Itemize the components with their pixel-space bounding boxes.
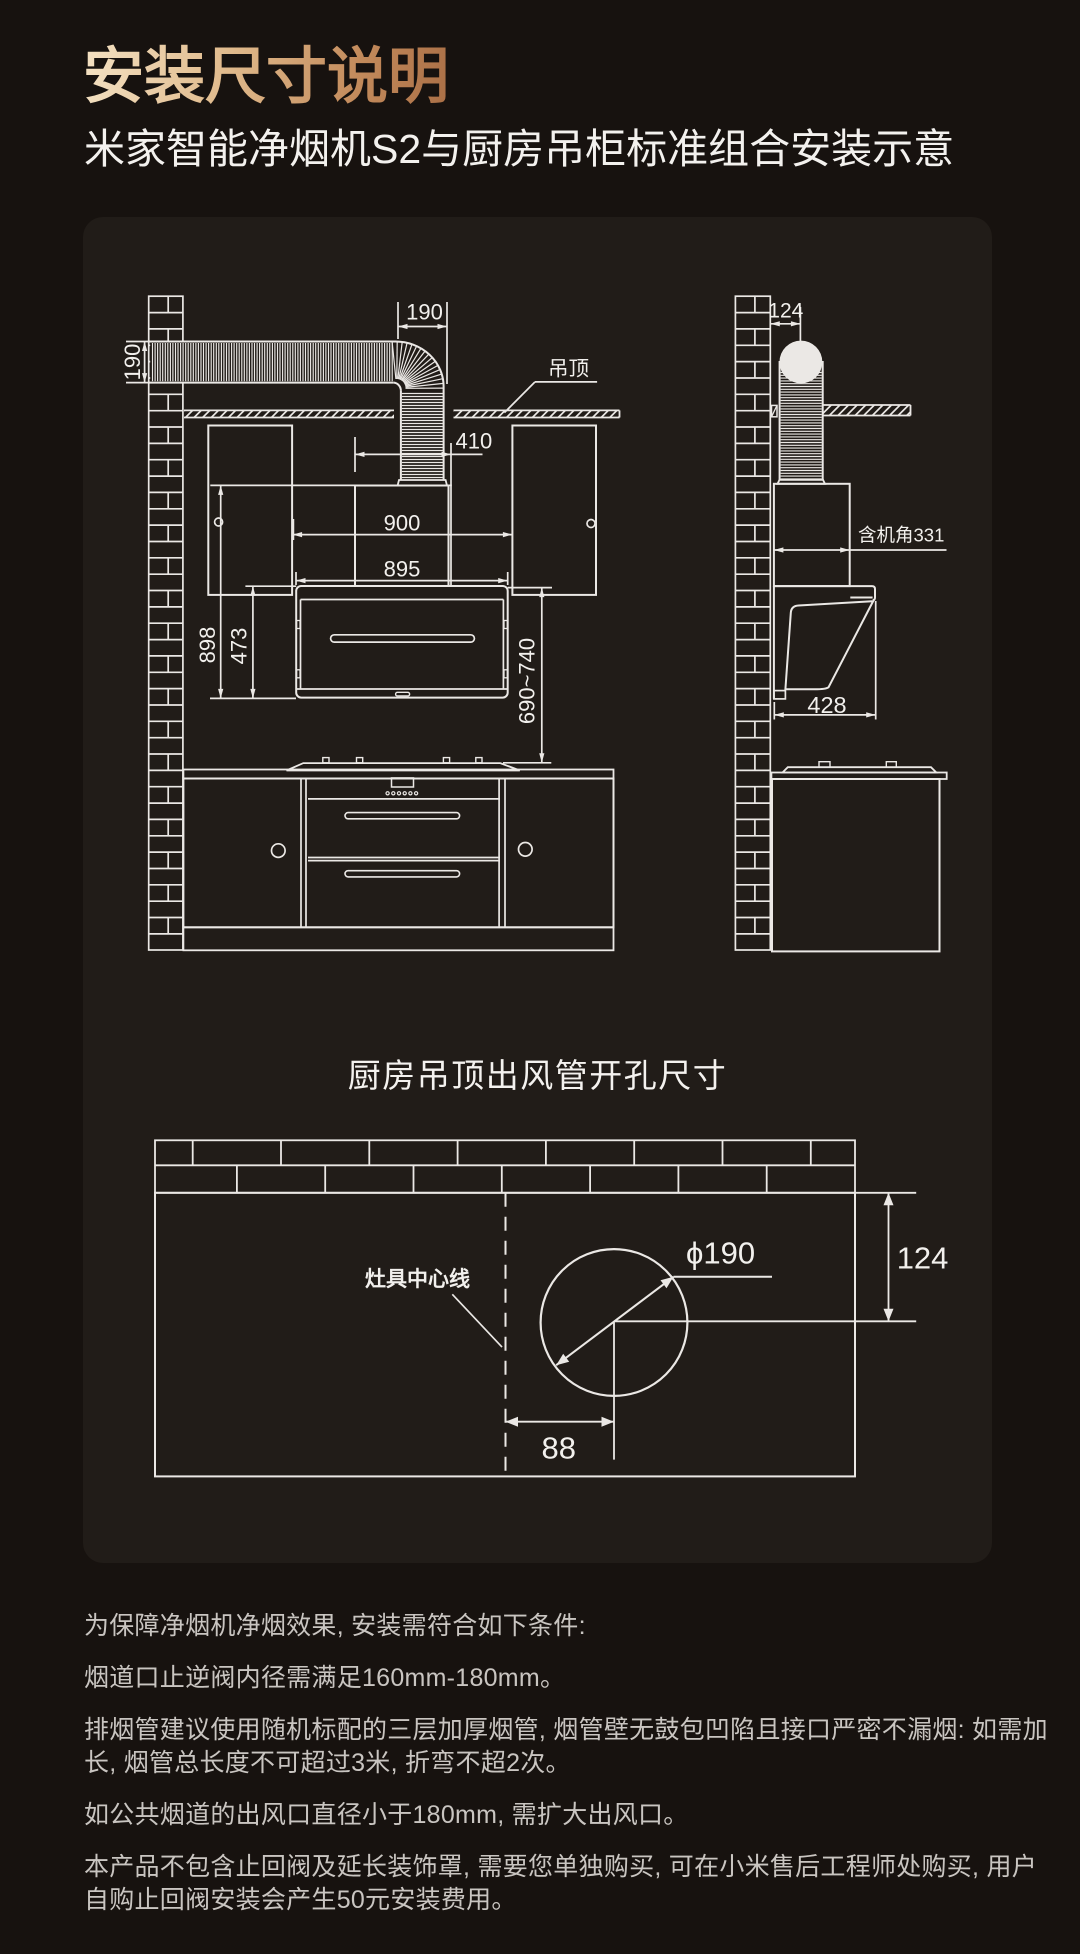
svg-text:190: 190: [120, 344, 145, 381]
svg-text:吊顶: 吊顶: [548, 358, 589, 381]
svg-text:190: 190: [406, 300, 443, 325]
svg-text:124: 124: [768, 299, 803, 322]
svg-text:428: 428: [807, 692, 846, 718]
svg-text:88: 88: [542, 1431, 576, 1466]
svg-text:900: 900: [384, 511, 421, 536]
svg-text:124: 124: [897, 1241, 949, 1276]
svg-text:ϕ190: ϕ190: [686, 1236, 755, 1271]
svg-text:410: 410: [456, 429, 493, 454]
svg-text:895: 895: [384, 557, 421, 582]
svg-text:898: 898: [195, 627, 220, 664]
svg-text:灶具中心线: 灶具中心线: [365, 1267, 470, 1291]
svg-text:690~740: 690~740: [515, 638, 540, 724]
svg-text:473: 473: [227, 628, 252, 665]
svg-text:含机角331: 含机角331: [858, 525, 944, 546]
svg-text:厨房吊顶出风管开孔尺寸: 厨房吊顶出风管开孔尺寸: [348, 1057, 728, 1094]
